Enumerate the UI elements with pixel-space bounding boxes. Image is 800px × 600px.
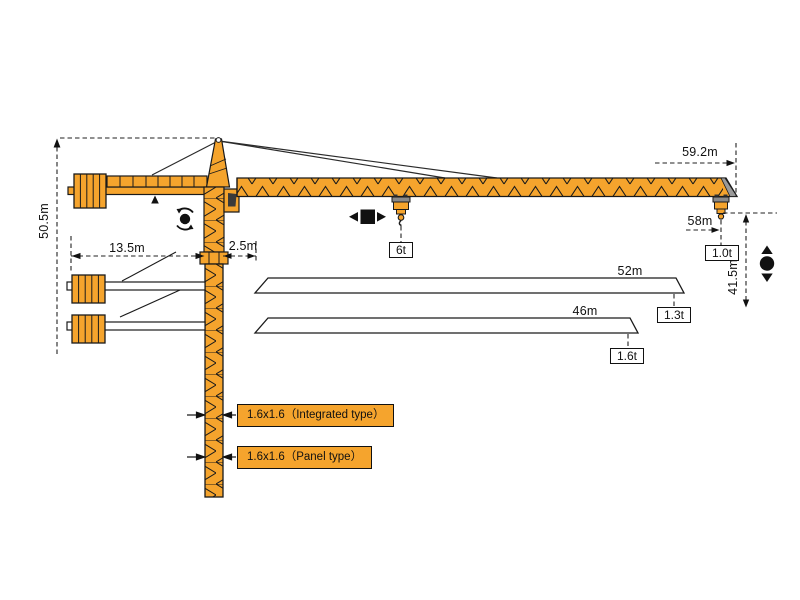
load-badge-52m-tip: 1.3t	[657, 307, 691, 323]
jib-option-46m-label: 46m	[573, 304, 598, 318]
load-badge-46m-tip: 1.6t	[610, 348, 644, 364]
slewing-unit	[200, 252, 228, 264]
slewing-icon	[177, 208, 194, 229]
crane-drawing	[0, 0, 800, 600]
ballast-beams	[67, 252, 205, 343]
counter-jib	[68, 174, 208, 208]
cab-window	[228, 193, 237, 207]
jib-option-52m-label: 52m	[618, 264, 643, 278]
dim-overall-height: 50.5m	[37, 203, 51, 239]
dim-lifting-height: 41.5m	[726, 259, 740, 295]
leader-line-lower	[120, 290, 180, 317]
hoisting-icon	[760, 246, 774, 283]
trolley-travel-icon	[349, 210, 386, 225]
mast-section-panel-label: 1.6x1.6（Panel type）	[237, 446, 372, 469]
load-badge-max: 6t	[389, 242, 413, 258]
tower-mast	[205, 264, 223, 497]
dim-mast-offset: 2.5m	[229, 239, 258, 253]
trolley-mid	[392, 195, 410, 226]
apex-pulley	[216, 138, 221, 143]
load-badge-tip: 1.0t	[705, 245, 739, 261]
jib-option-46m-bar	[255, 318, 638, 333]
dim-jib-tip-radius: 59.2m	[682, 145, 718, 159]
dim-counterjib-radius: 13.5m	[109, 241, 145, 255]
trolley-tip	[713, 195, 729, 220]
counterweight-block	[74, 174, 106, 208]
dim-hook-max-radius: 58m	[688, 214, 713, 228]
jib-length-bars	[255, 278, 684, 333]
mast-section-integrated-label: 1.6x1.6（Integrated type）	[237, 404, 394, 427]
crane-diagram: 50.5m 13.5m 2.5m 59.2m 58m 41.5m 52m 46m…	[0, 0, 800, 600]
hook-tip	[718, 214, 723, 219]
jib-option-52m-bar	[255, 278, 684, 293]
counterjib-marker-arrow	[151, 196, 159, 204]
pendant-cables	[152, 141, 497, 178]
hook-mid	[398, 215, 404, 221]
jib	[237, 178, 737, 197]
